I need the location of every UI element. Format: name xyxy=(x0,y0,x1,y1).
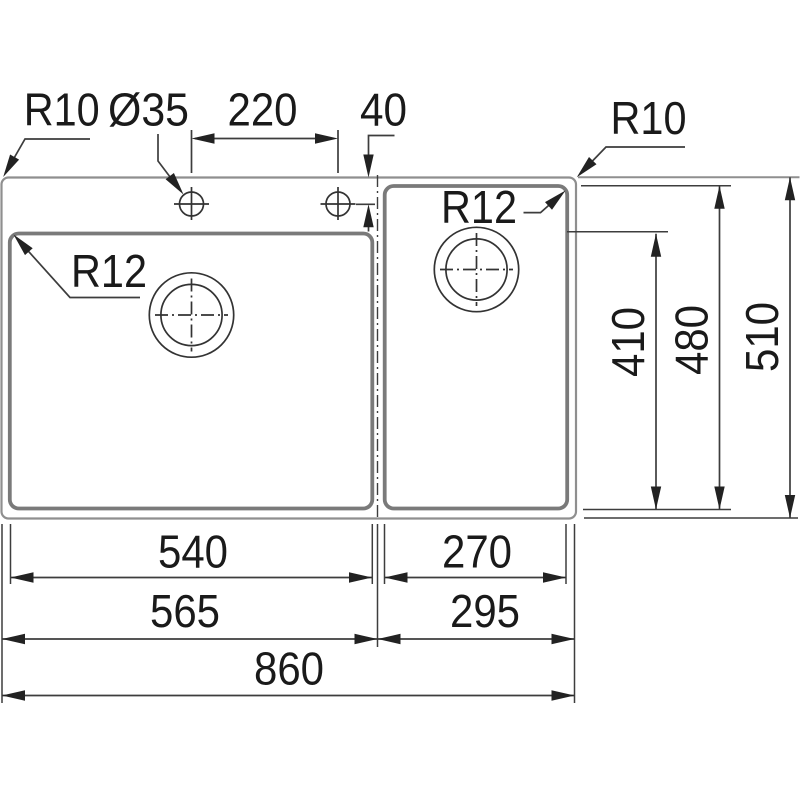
svg-text:860: 860 xyxy=(254,643,324,695)
svg-text:540: 540 xyxy=(158,526,228,578)
svg-text:565: 565 xyxy=(150,585,220,637)
svg-text:480: 480 xyxy=(666,305,718,375)
svg-text:R10: R10 xyxy=(611,92,687,144)
svg-text:220: 220 xyxy=(228,84,298,136)
svg-text:510: 510 xyxy=(736,302,788,372)
svg-text:270: 270 xyxy=(442,526,512,578)
svg-text:40: 40 xyxy=(360,84,407,136)
svg-text:Ø35: Ø35 xyxy=(108,84,189,136)
svg-text:410: 410 xyxy=(602,307,654,377)
svg-text:R12: R12 xyxy=(71,245,147,297)
svg-text:295: 295 xyxy=(450,585,520,637)
svg-text:R12: R12 xyxy=(441,181,517,233)
svg-text:R10: R10 xyxy=(24,84,100,136)
